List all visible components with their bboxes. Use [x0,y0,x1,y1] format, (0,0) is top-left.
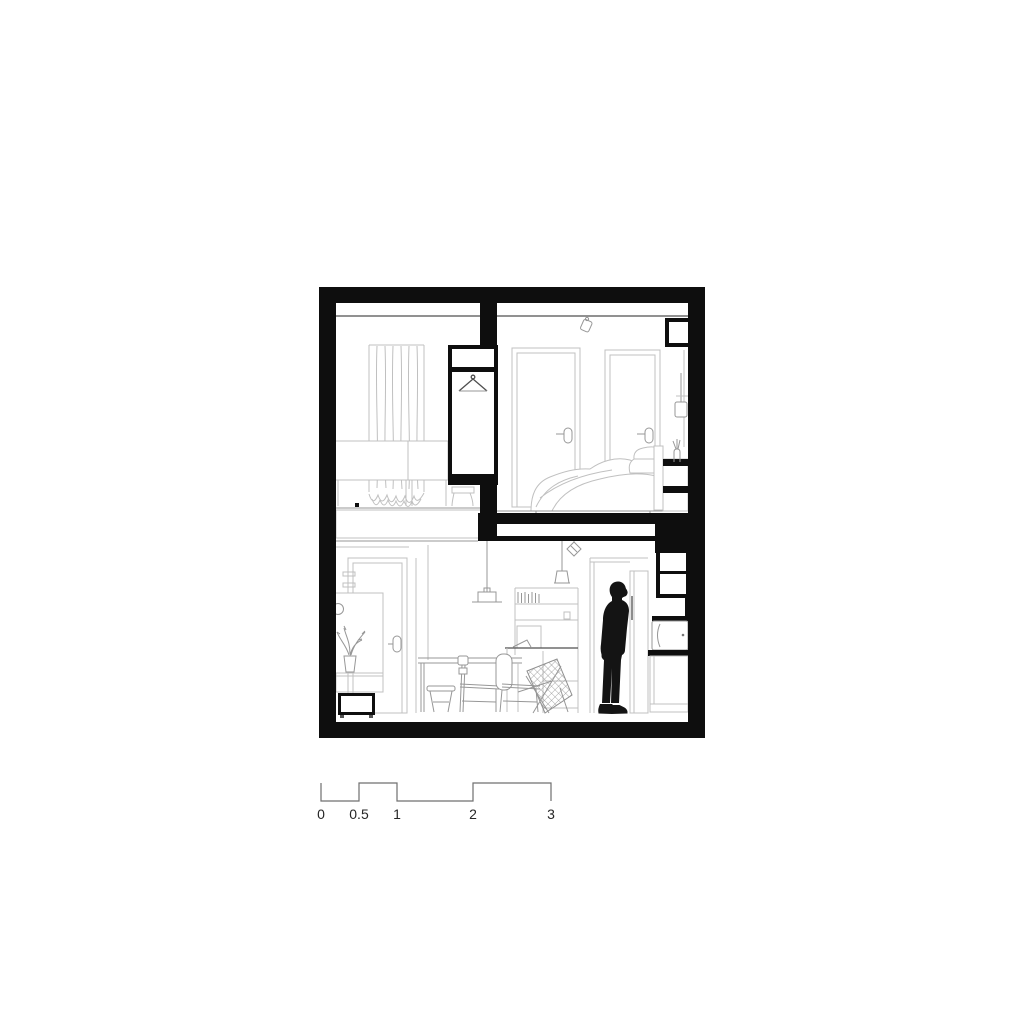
man-silhouette [598,581,629,714]
ground-slab [319,722,705,738]
wardrobe [448,345,498,506]
kitchen-cabinets [648,513,690,712]
hands-behind-back [602,652,611,661]
scale-label-3: 3 [547,806,555,822]
lower-living-room [333,513,691,718]
pendant-lamp-large [472,541,502,602]
ceiling-spot-diamond-icon [567,541,581,556]
scale-label-0: 0 [317,806,325,822]
scale-label-05: 0.5 [349,806,369,822]
front-shoe [612,705,628,714]
laptop [513,640,531,647]
scale-bar: 0 0.5 1 2 3 [317,783,555,822]
cup [564,612,570,619]
back-shoe [598,704,612,714]
pendant-lamp-small [554,541,570,583]
curtain [369,345,424,507]
storage-bench [338,693,375,718]
face-profile [621,586,628,598]
chair-1 [458,656,499,712]
wall-lamp [675,373,688,417]
kitchen-counter [648,650,690,656]
headboard [654,446,663,510]
upper-right-bedroom [497,316,688,513]
slab-left-closure [478,513,492,541]
door-1-handle [564,428,572,443]
books [518,592,539,603]
stool [427,686,455,712]
microwave [652,621,688,650]
bed-left-foot-mark [355,503,359,507]
entry-door-handle [393,636,401,652]
scale-label-1: 1 [393,806,401,822]
roof-slab [319,287,705,303]
desk-nook [517,626,541,648]
console-table [336,673,383,692]
mirror-cabinet [333,593,384,673]
mezzanine-platform [336,510,488,541]
scale-label-2: 2 [469,806,477,822]
nightstand [663,439,688,511]
overhead-cabinet [665,318,688,347]
mid-floor-slab [478,513,694,524]
bed-left [333,441,448,507]
door-2-handle [645,428,653,443]
bed-left-body [333,441,448,480]
slab-soffit-strip [492,536,655,541]
ceiling-spotlight-icon [580,317,593,332]
section-drawing-page: 0 0.5 1 2 3 [0,0,1024,1024]
left-wall [319,287,336,738]
lounge-chair [518,659,572,713]
wardrobe-step-bench [452,487,474,506]
right-wall [688,287,705,738]
fridge [630,571,648,713]
apartment-section-svg: 0 0.5 1 2 3 [0,0,1024,1024]
partition-upper [480,303,497,348]
base-cabinet [650,656,688,712]
bed-right [531,446,663,513]
